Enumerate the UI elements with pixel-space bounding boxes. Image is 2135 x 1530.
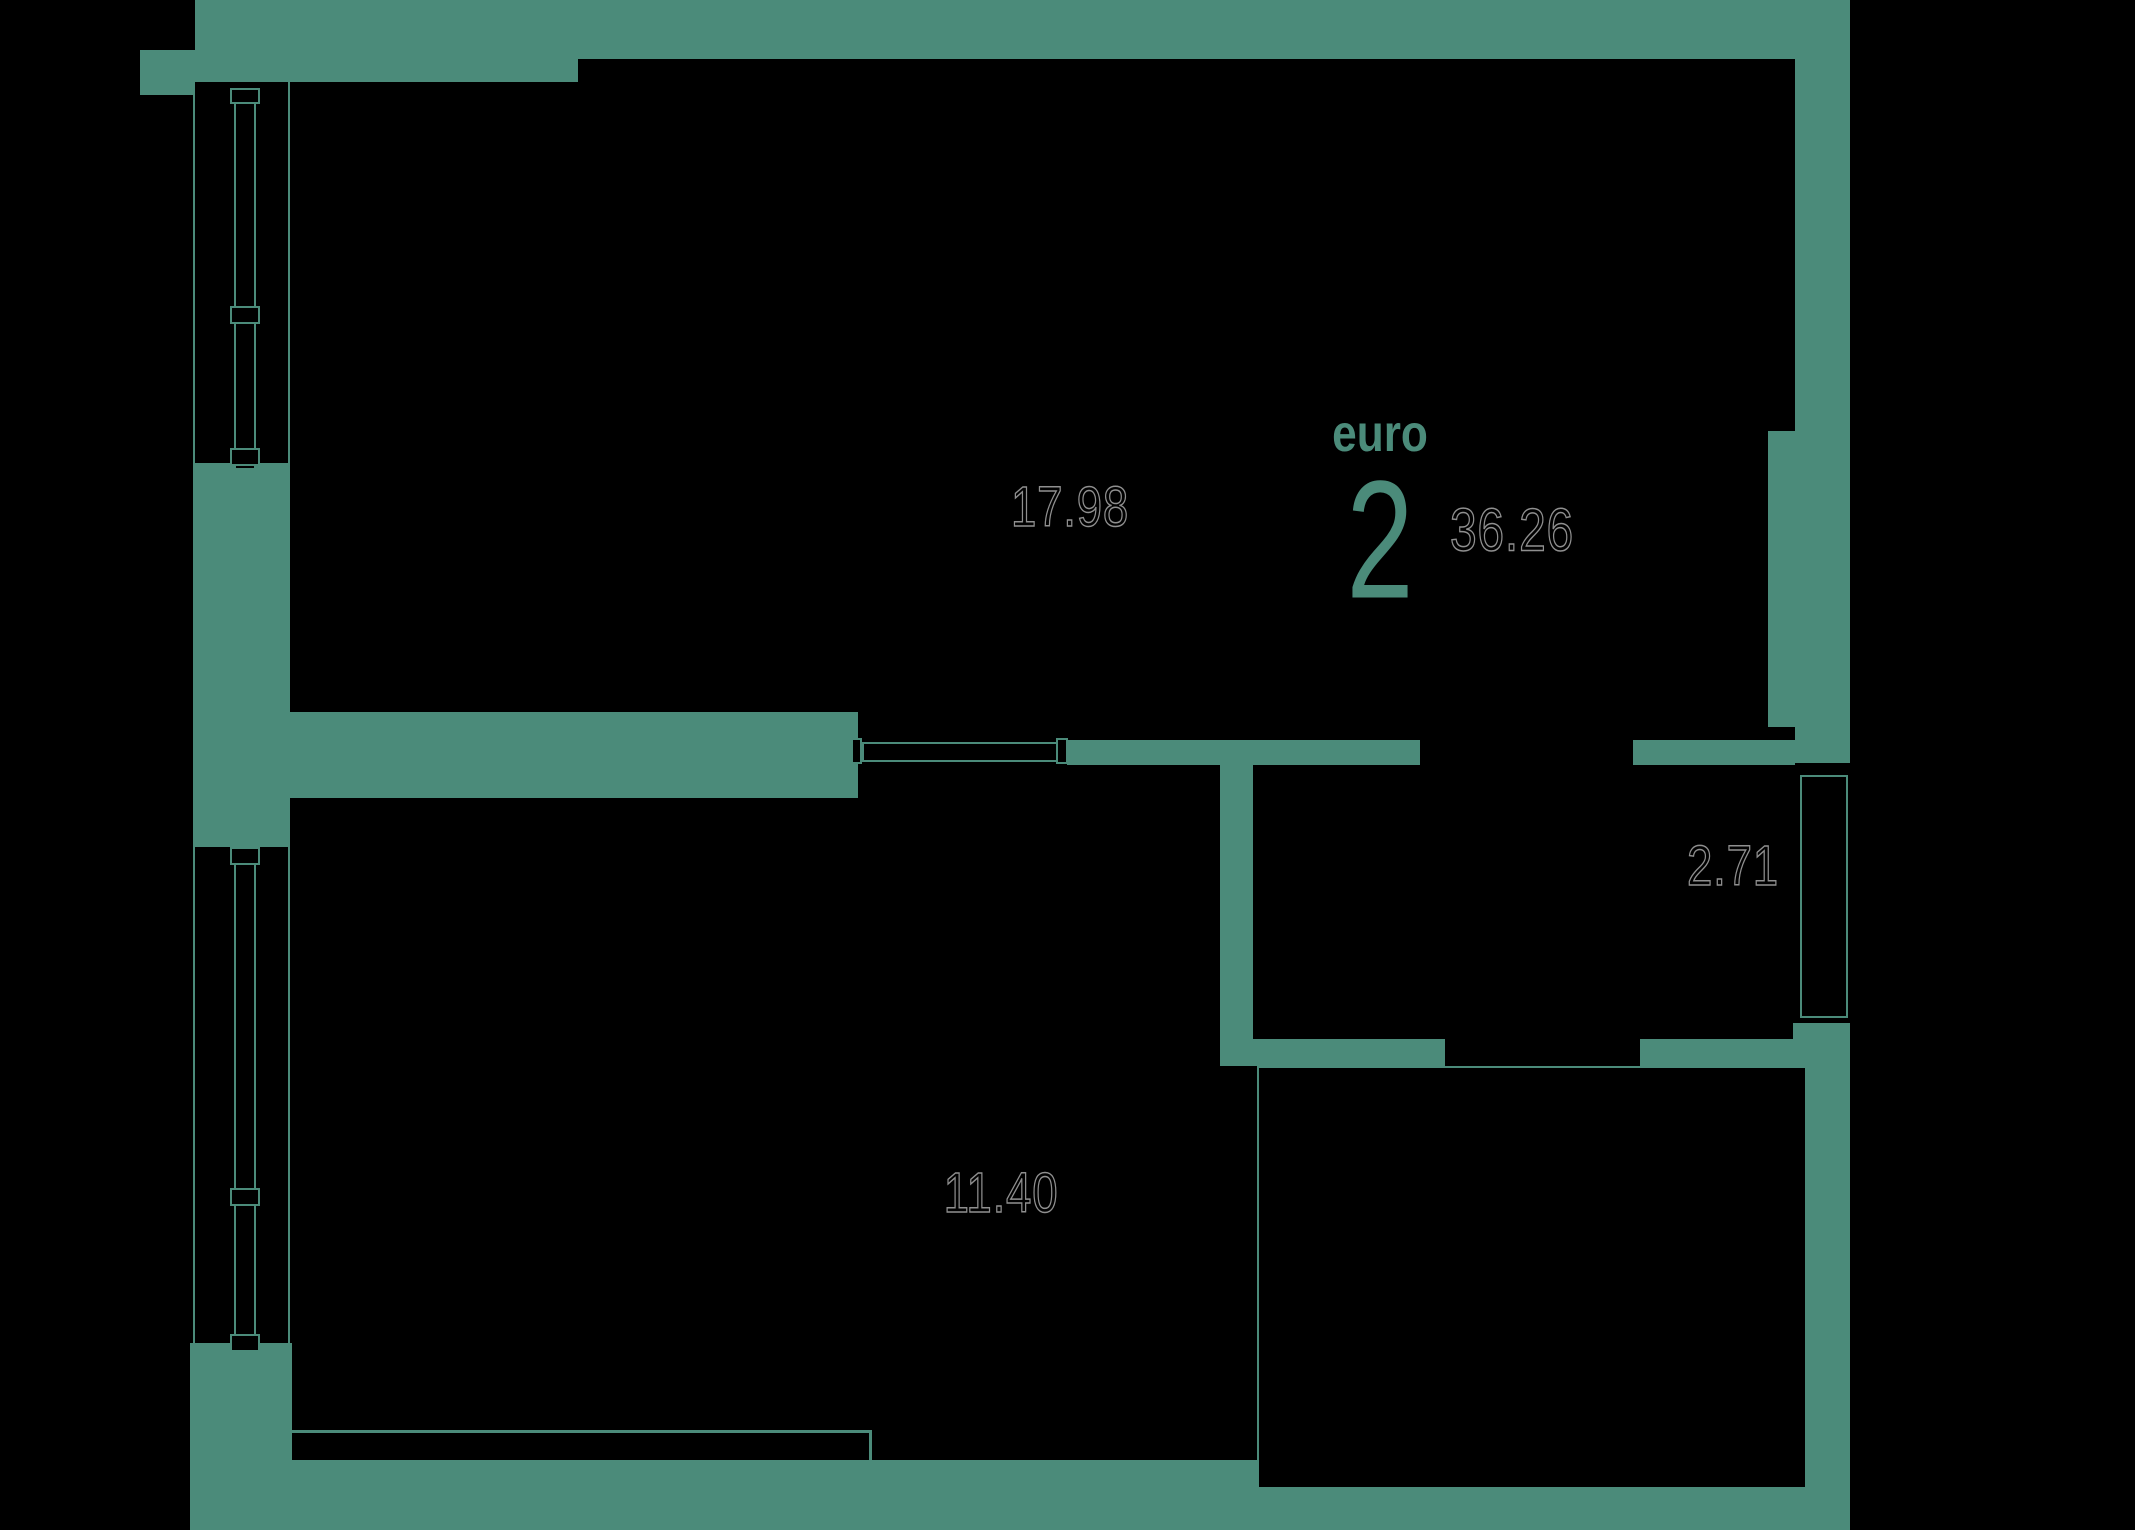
- living-bedroom-wall: [195, 712, 858, 798]
- door-leaf: [862, 742, 1062, 762]
- right-wall-top: [1795, 0, 1850, 431]
- hall-bath-wall-vertical: [1220, 740, 1253, 1066]
- window-1-block-bottom: [230, 448, 260, 466]
- door-jamb-left: [851, 738, 862, 764]
- left-wall-inner-face-up: [288, 82, 290, 712]
- apartment-total-area: 36.26: [1450, 496, 1574, 565]
- window-2-block-handle: [230, 1188, 260, 1206]
- door-jamb-right: [1056, 738, 1068, 764]
- room-area-hallway: 2.71: [1687, 833, 1779, 899]
- bath-wall-left: [1220, 1039, 1445, 1066]
- window-2-block-bottom: [230, 1334, 260, 1352]
- corridor-wall-right: [1633, 740, 1795, 765]
- right-wall-mid: [1795, 727, 1850, 763]
- right-wall-pier: [1768, 431, 1850, 727]
- window-2-frame: [234, 847, 256, 1352]
- room-area-living-room: 17.98: [1011, 474, 1129, 540]
- apartment-rooms-count: 2: [1346, 444, 1413, 637]
- top-wall-left-thick: [195, 0, 578, 82]
- left-top-corner-step: [140, 50, 195, 95]
- bath-wall-right: [1640, 1039, 1824, 1066]
- left-wall-outer-face: [193, 95, 195, 1343]
- floor-plan: euro 2 36.26 17.98 11.40 2.71 4.17: [0, 0, 2135, 1530]
- bathroom-inner-outline: [1257, 1066, 1807, 1489]
- window-2-block-top: [230, 847, 260, 865]
- window-1-block-handle: [230, 306, 260, 324]
- top-wall-right: [578, 0, 1850, 59]
- left-wall-inner-face-low: [288, 798, 290, 1460]
- bedroom-bottom-face: [290, 1430, 871, 1433]
- window-1-frame: [234, 88, 256, 470]
- bedroom-bottom-face-step: [869, 1430, 872, 1462]
- window-3-frame: [1800, 775, 1848, 1018]
- window-1-block-top: [230, 88, 260, 104]
- room-area-bedroom: 11.40: [944, 1160, 1059, 1226]
